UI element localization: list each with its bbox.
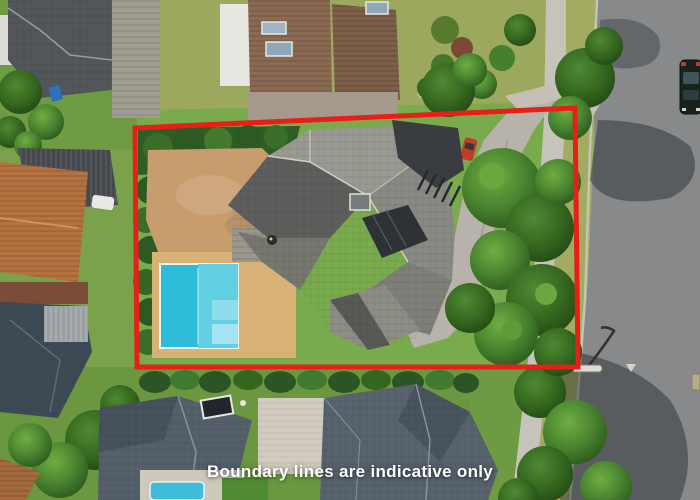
skylight <box>266 42 292 56</box>
bottom-lawn-patch <box>222 478 268 500</box>
car-taillight-right <box>696 62 700 66</box>
car-rear-window <box>683 90 699 100</box>
chimney <box>350 194 370 210</box>
satellite-dish-arm <box>270 238 273 241</box>
aerial-photo: Boundary lines are indicative only <box>0 0 700 500</box>
solar-skylight <box>201 396 234 419</box>
swimming-pool <box>160 264 238 348</box>
skylight <box>262 22 286 34</box>
shed-corrugation <box>44 306 88 342</box>
pool-steps <box>212 300 238 320</box>
white-flat-roof <box>220 4 250 86</box>
skylight <box>366 2 388 14</box>
pool-steps <box>212 324 238 344</box>
car-taillight-left <box>681 62 686 66</box>
car-light <box>682 108 686 111</box>
car-light <box>696 108 700 111</box>
roof-vent <box>240 400 246 406</box>
aerial-photo-canvas <box>0 0 700 500</box>
deck-planks <box>112 0 160 118</box>
courtyard-tiles <box>258 398 324 474</box>
drain-cover <box>692 374 700 390</box>
parked-car <box>680 60 700 114</box>
neighborhood-bottom <box>98 366 632 500</box>
red-deck <box>0 282 88 304</box>
bottom-neighbor-pool <box>150 482 204 500</box>
car-windshield <box>683 72 699 84</box>
